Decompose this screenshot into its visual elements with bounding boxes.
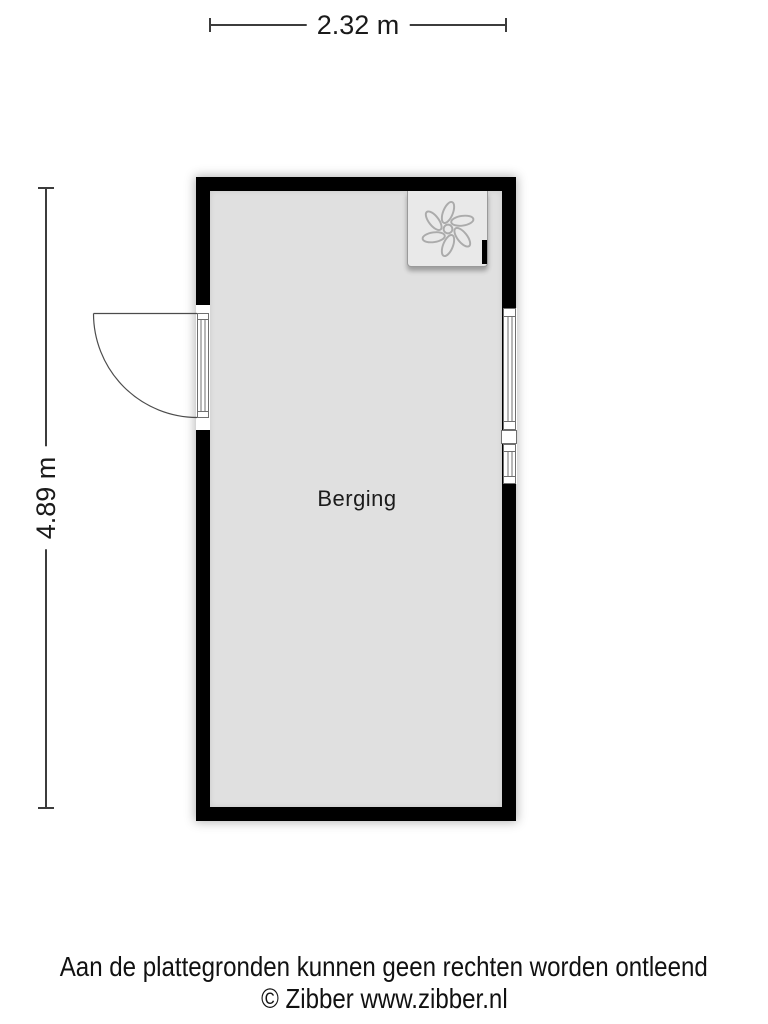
height-dimension-tick-bottom — [38, 807, 54, 809]
vent-pipe-tick — [482, 240, 487, 264]
window-bottom-cap-lower — [504, 476, 515, 477]
width-dimension-label: 2.32 m — [307, 10, 410, 40]
copyright-text: © Zibber www.zibber.nl — [0, 983, 768, 1015]
window-top-cap-lower — [504, 421, 515, 422]
window-mullion — [501, 430, 517, 444]
window-bottom-glass — [507, 452, 512, 476]
window-top — [503, 308, 516, 430]
footer: Aan de plattegronden kunnen geen rechten… — [0, 951, 768, 1015]
window-top-glass — [507, 317, 512, 421]
disclaimer-text: Aan de plattegronden kunnen geen rechten… — [0, 951, 768, 983]
fan-icon — [414, 195, 482, 263]
door-panel-cap-bottom — [198, 411, 208, 412]
width-dimension-tick-left — [209, 18, 211, 32]
window-bottom — [503, 444, 516, 484]
ventilation-unit — [407, 191, 488, 267]
floorplan-canvas: 2.32 m 4.89 m — [0, 0, 768, 1024]
door-panel — [197, 313, 209, 418]
height-dimension-tick-top — [38, 187, 54, 189]
room-name-label: Berging — [317, 486, 396, 512]
door-panel-glass — [201, 320, 206, 411]
height-dimension-label: 4.89 m — [31, 447, 61, 550]
width-dimension-tick-right — [505, 18, 507, 32]
